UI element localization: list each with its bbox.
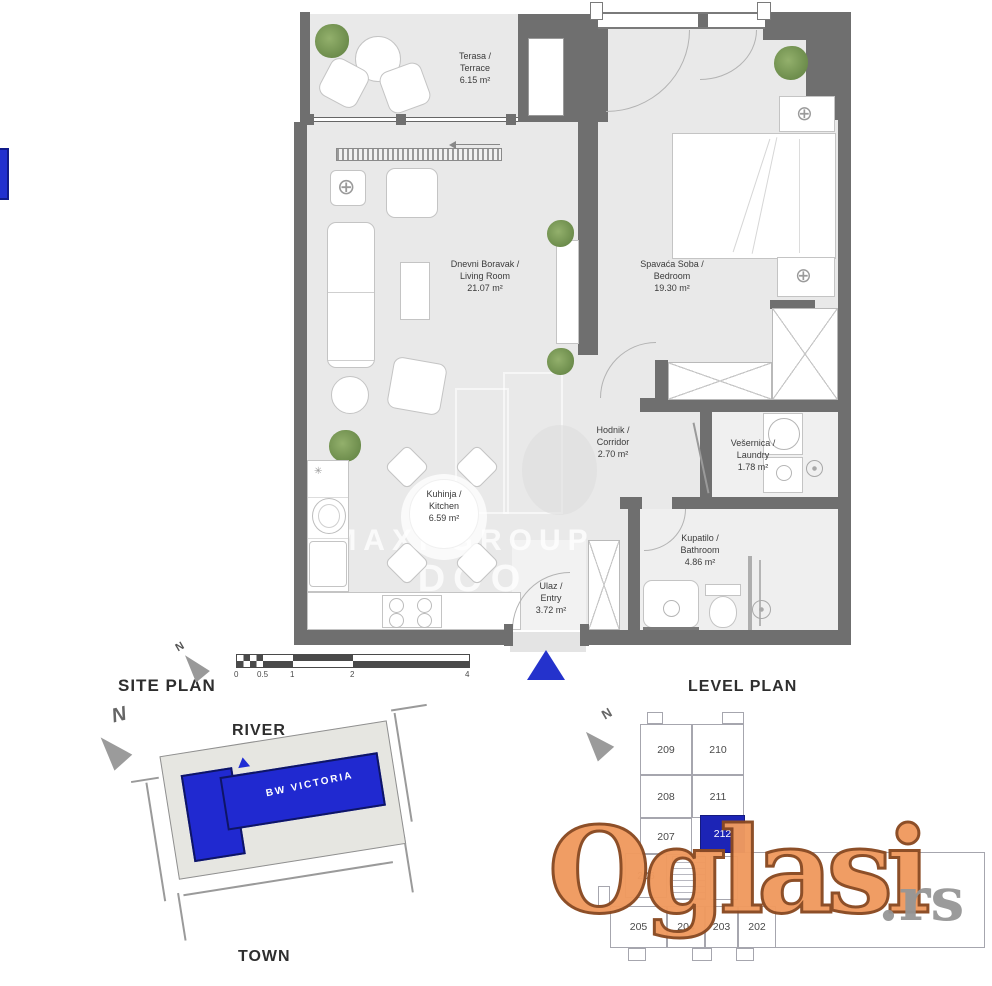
burner-icon: ✳ [314,466,322,477]
wall [578,122,598,355]
burner-icon [417,613,432,628]
scale-segment [293,655,353,661]
kitchen-sink-basin [318,504,340,528]
room-label-laundry: Vešernica / Laundry 1.78 m² [714,437,792,473]
room-label-living: Dnevni Boravak / Living Room 21.07 m² [425,258,545,294]
faucet-icon [663,600,680,617]
road-line [177,893,186,941]
stove [382,595,442,628]
room-area: 3.72 m² [518,604,584,616]
room-name-en: Entry [518,592,584,604]
bed [672,133,836,259]
plant-icon [774,46,808,80]
room-label-kitchen: Kuhinja / Kitchen 6.59 m² [406,488,482,524]
scale-segment [237,655,263,667]
radiator [336,148,502,161]
room-name-en: Terrace [437,62,513,74]
room-name: Vešernica / [714,437,792,449]
scale-tick: 2 [350,670,354,679]
room-area: 2.70 m² [580,448,646,460]
terrace-niche [528,38,564,116]
site-plan-title: SITE PLAN [118,676,216,696]
entry-threshold [510,632,586,652]
toilet-bowl [709,596,737,628]
room-name-en: Bedroom [612,270,732,282]
room-name: Kuhinja / [406,488,482,500]
balcony-tab [628,948,646,961]
plant-icon [547,220,574,247]
balcony-tab [736,948,754,961]
room-name-en: Living Room [425,270,545,282]
floorplan-page: MAXI GROUP DOO [0,0,992,986]
room-name-en: Laundry [714,449,792,461]
glass-post [306,114,314,125]
unit-210: 210 [692,724,744,775]
door-slide-arrow [456,144,500,145]
room-name-en: Kitchen [406,500,482,512]
armchair [386,356,448,417]
lamp-icon: ⊕ [796,101,813,125]
room-name-en: Bathroom [652,544,748,556]
wall [300,12,310,122]
window-mullion [698,14,708,27]
entry-closet [588,540,620,630]
wall [294,630,510,645]
road-line [145,783,165,902]
terrace-glass-door [310,117,518,122]
level-plan-title: LEVEL PLAN [688,678,797,696]
room-area: 6.59 m² [406,512,482,524]
lamp-icon: ⊕ [795,263,812,287]
side-table [331,376,369,414]
unit-number: 210 [709,744,727,756]
plant-icon [547,348,574,375]
road-line [131,777,159,783]
bedroom-window [598,12,765,29]
vent-icon [806,460,823,477]
north-label: N [599,705,615,723]
north-label-small: N [174,640,187,654]
lamp-icon: ⊕ [337,175,355,200]
armchair [386,168,438,218]
scale-tick: 1 [290,670,294,679]
room-label-entry: Ulaz / Entry 3.72 m² [518,580,584,616]
wall [586,630,850,645]
road-line [403,837,413,893]
scale-tick: 0 [234,670,238,679]
arrow-head-icon [449,141,456,149]
glass-post [396,114,406,125]
room-label-bathroom: Kupatilo / Bathroom 4.86 m² [652,532,748,568]
room-area: 1.78 m² [714,461,792,473]
room-area: 21.07 m² [425,282,545,294]
room-name: Dnevni Boravak / [425,258,545,270]
north-label: N [109,703,129,729]
room-area: 19.30 m² [612,282,732,294]
scale-tick: 4 [465,670,469,679]
wardrobe [668,362,772,400]
room-label-bedroom: Spavaća Soba / Bedroom 19.30 m² [612,258,732,294]
room-area: 4.86 m² [652,556,748,568]
wardrobe [772,308,838,400]
north-arrow-icon [92,729,133,770]
threshold-bracket [504,624,513,646]
unit-209: 209 [640,724,692,775]
plant-icon [315,24,349,58]
road-line [391,704,427,711]
room-name: Spavaća Soba / [612,258,732,270]
left-blue-tab [0,148,9,200]
north-arrow-icon [578,724,614,761]
room-area: 6.15 m² [437,74,513,86]
bed-pillow-line [799,139,800,253]
scale-tick: 0.5 [257,670,268,679]
oven [309,541,347,587]
room-name: Ulaz / [518,580,584,592]
threshold-bracket [580,624,589,646]
burner-icon [417,598,432,613]
burner-icon [389,598,404,613]
glass-post [506,114,516,125]
scale-segment [353,661,469,667]
room-name: Terasa / [437,50,513,62]
room-label-terrace: Terasa / Terrace 6.15 m² [437,50,513,86]
slab-line [984,852,985,948]
shower-divider [748,556,752,630]
wall [628,497,640,630]
balcony-tab [722,712,744,724]
wall [640,398,840,412]
balcony-tab [647,712,663,724]
slab-line [776,947,985,948]
scale-segment [263,661,293,667]
wall [294,122,307,645]
entry-marker-triangle [527,650,565,680]
oglasi-watermark: Oglasi [548,812,924,930]
wall [672,497,850,509]
balcony-tab [692,948,712,961]
room-name: Kupatilo / [652,532,748,544]
unit-marker-triangle [237,756,250,768]
room-name: Hodnik / [580,424,646,436]
scale-bar: 0 0.5 1 2 4 [236,654,470,668]
oglasi-watermark-tld: .rs [878,870,964,930]
town-label: TOWN [238,948,291,966]
unit-number: 209 [657,744,675,756]
room-label-corridor: Hodnik / Corridor 2.70 m² [580,424,646,460]
tv-stand [556,240,579,344]
site-plan-map: BW VICTORIA [148,707,431,916]
burner-icon [389,613,404,628]
window-tab [757,2,771,20]
vanity-edge [643,627,699,630]
sofa [327,222,375,368]
toilet-tank [705,584,741,596]
wall [655,360,668,402]
room-name-en: Corridor [580,436,646,448]
shower-head-icon [752,600,771,619]
window-tab [590,2,603,20]
plant-icon [329,430,361,462]
